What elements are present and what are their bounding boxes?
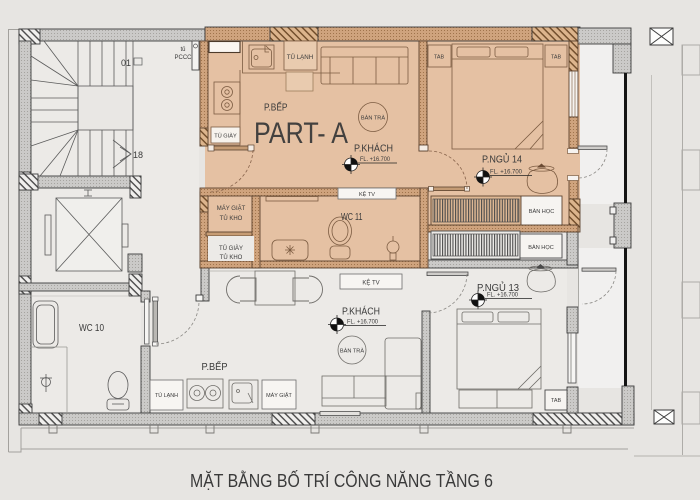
svg-text:TAB: TAB [434, 55, 444, 61]
svg-text:PCCC: PCCC [174, 55, 192, 61]
svg-text:BÀN HỌC: BÀN HỌC [529, 208, 555, 215]
svg-text:tủ: tủ [180, 46, 185, 53]
svg-text:FL. +16.700: FL. +16.700 [487, 292, 518, 299]
svg-text:P.KHÁCH: P.KHÁCH [342, 305, 380, 318]
svg-text:FL. +16.700: FL. +16.700 [490, 169, 522, 176]
svg-text:MẶT BẰNG BỐ TRÍ CÔNG NĂNG TẦNG: MẶT BẰNG BỐ TRÍ CÔNG NĂNG TẦNG 6 [190, 470, 493, 491]
svg-text:FL. +16.700: FL. +16.700 [360, 156, 390, 163]
svg-text:TỦ GIÀY: TỦ GIÀY [219, 245, 243, 252]
svg-text:KỆ TV: KỆ TV [359, 190, 375, 198]
svg-text:TỦ LẠNH: TỦ LẠNH [287, 54, 313, 61]
svg-text:FL. +16.700: FL. +16.700 [347, 319, 378, 326]
svg-text:01: 01 [121, 58, 131, 68]
svg-text:TAB: TAB [551, 398, 561, 404]
svg-text:P.KHÁCH: P.KHÁCH [354, 142, 393, 155]
svg-text:P.BẾP: P.BẾP [264, 101, 288, 114]
svg-text:BÀN TRÀ: BÀN TRÀ [340, 348, 364, 355]
svg-text:TỦ LẠNH: TỦ LẠNH [155, 392, 178, 399]
svg-text:P.NGỦ 14: P.NGỦ 14 [482, 153, 522, 166]
svg-text:TAB: TAB [551, 55, 561, 61]
svg-text:TỦ KHO: TỦ KHO [220, 254, 243, 261]
svg-text:WC 11: WC 11 [341, 211, 363, 223]
svg-text:TỦ GIÀY: TỦ GIÀY [214, 133, 237, 140]
svg-text:KỆ TV: KỆ TV [362, 279, 379, 287]
svg-text:MÁY GIẶT: MÁY GIẶT [266, 392, 292, 399]
svg-text:P.BẾP: P.BẾP [202, 360, 228, 373]
svg-text:18: 18 [133, 150, 143, 160]
svg-text:PART- A: PART- A [254, 117, 348, 150]
svg-text:BÀN TRÀ: BÀN TRÀ [361, 115, 385, 122]
svg-text:WC 10: WC 10 [79, 322, 104, 334]
svg-text:MÁY GIẶT: MÁY GIẶT [217, 205, 246, 212]
svg-text:TỦ KHO: TỦ KHO [220, 215, 243, 222]
svg-text:BÀN HỌC: BÀN HỌC [528, 244, 554, 251]
